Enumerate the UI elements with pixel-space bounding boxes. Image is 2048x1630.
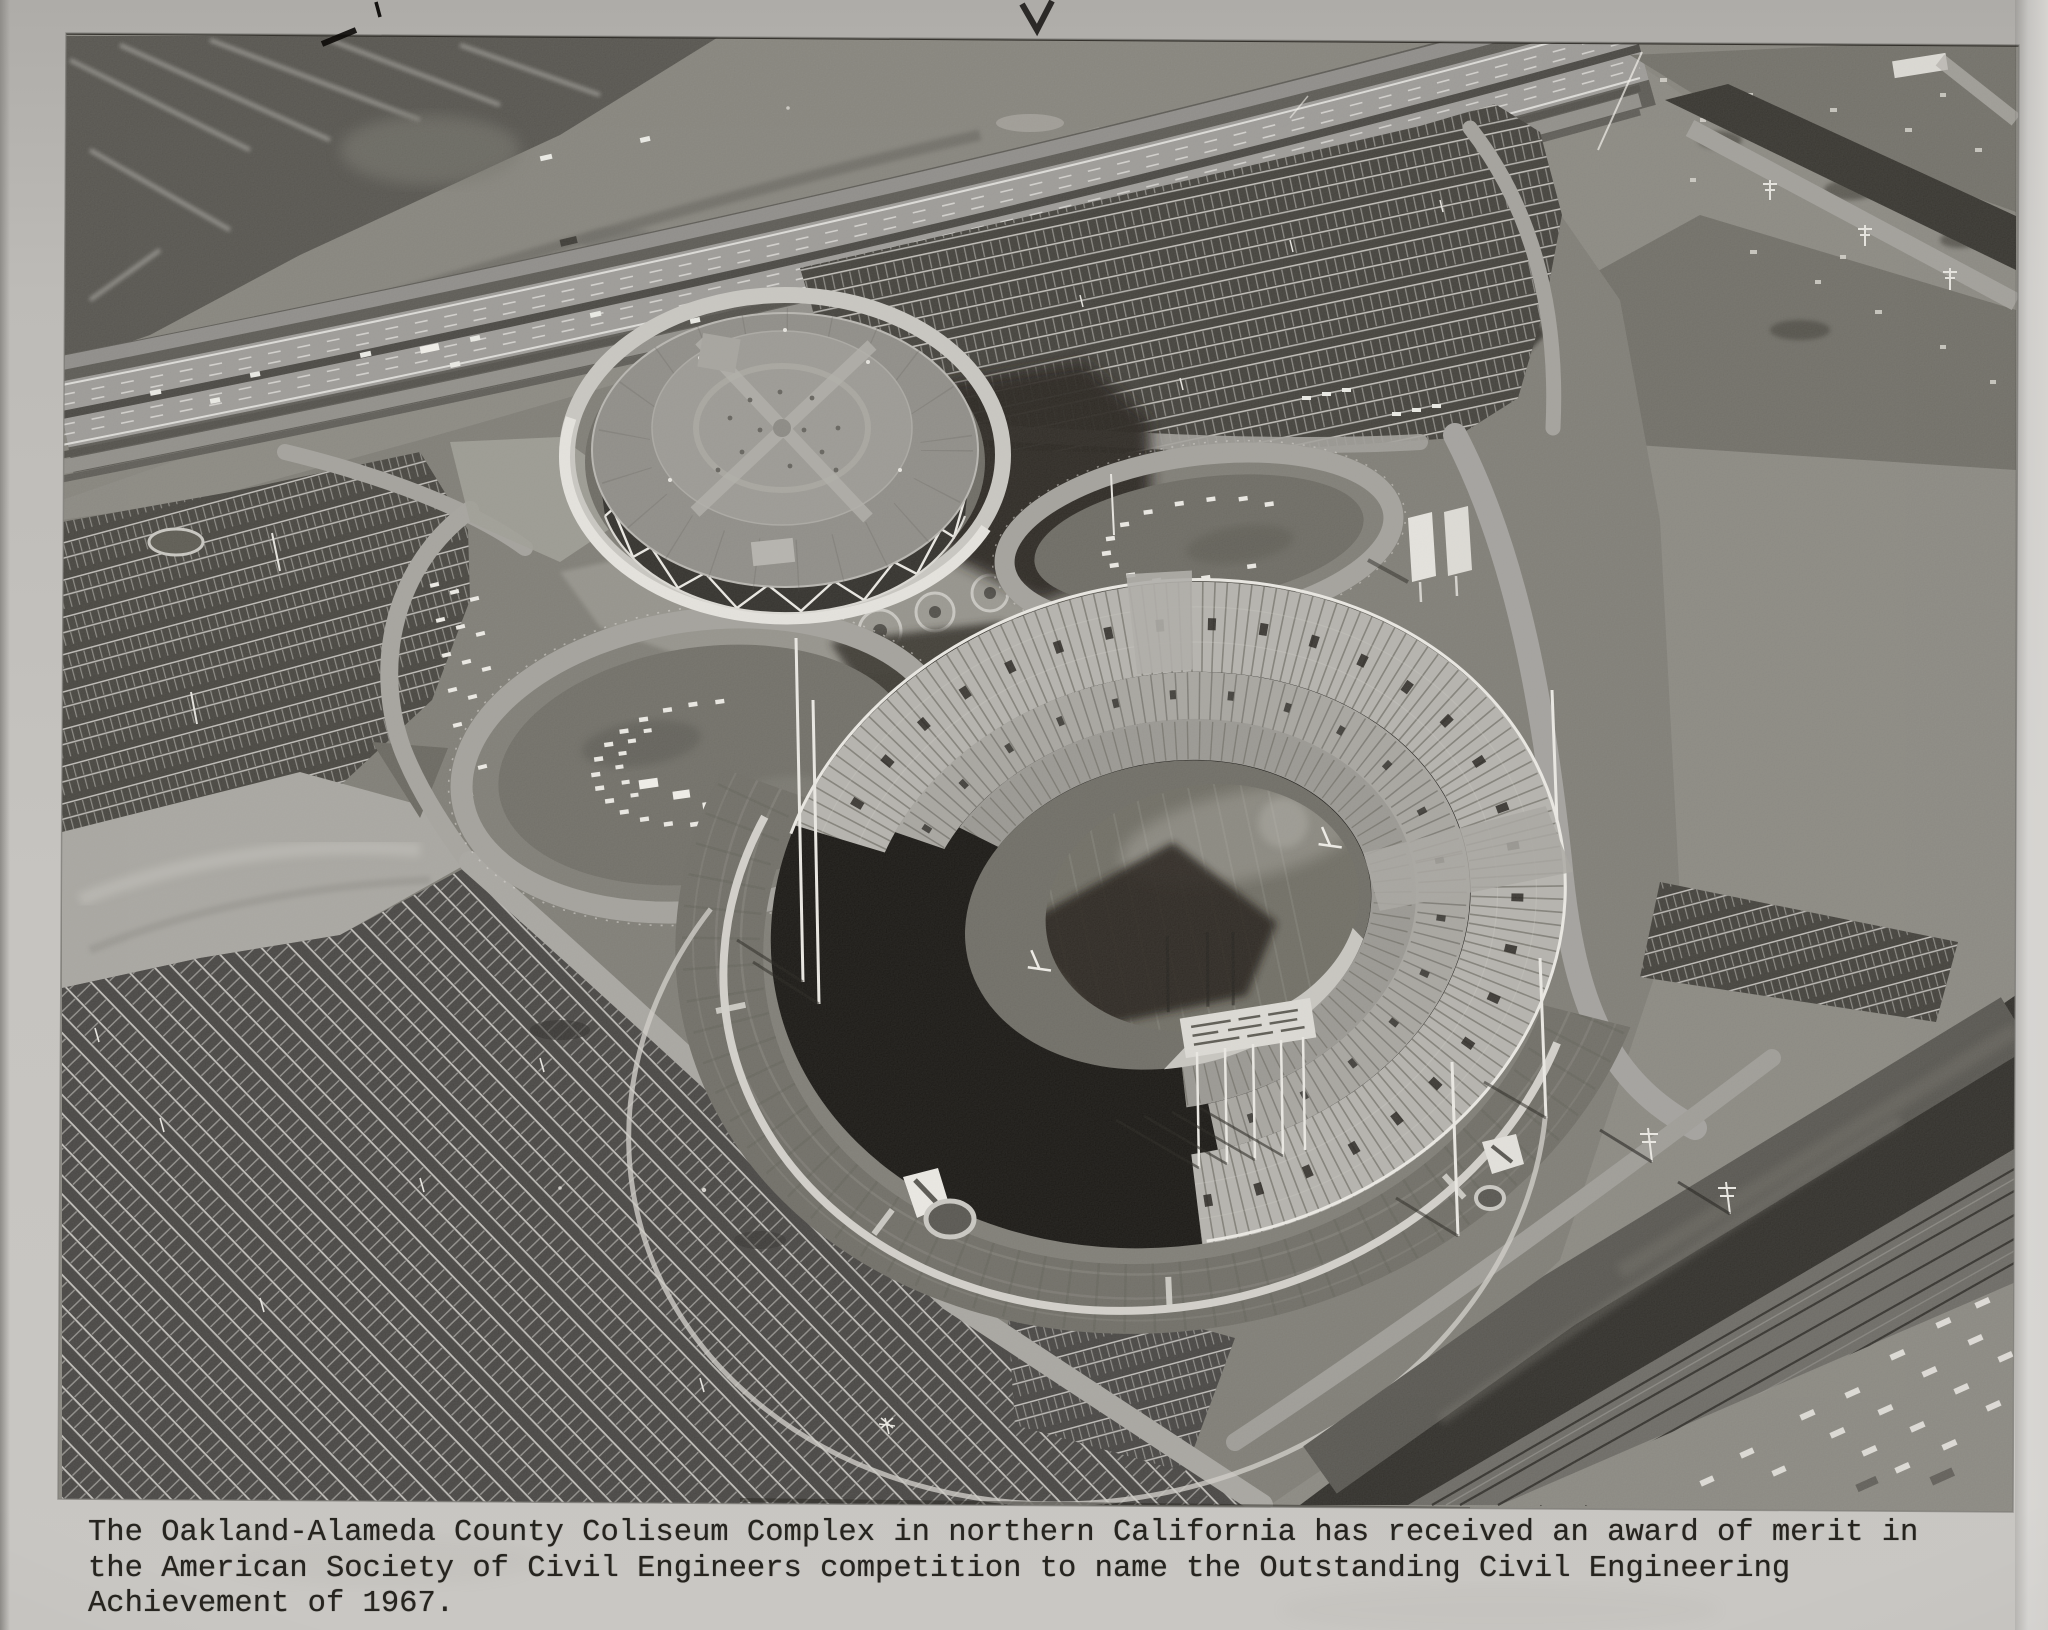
mount-right-border xyxy=(2015,0,2048,1630)
mount-left-edge xyxy=(0,0,10,1630)
checkmark xyxy=(1022,1,1052,30)
caption-line-2: the American Society of Civil Engineers … xyxy=(88,1552,1988,1588)
caption-line-1: The Oakland-Alameda County Coliseum Comp… xyxy=(88,1516,1988,1552)
caption: The Oakland-Alameda County Coliseum Comp… xyxy=(88,1516,1988,1623)
caption-line-3: Achievement of 1967. xyxy=(88,1587,1988,1623)
aerial-photograph xyxy=(0,0,2048,1630)
photo-emulsion xyxy=(40,0,2030,1588)
film-grain xyxy=(40,20,2030,1520)
photo-mount-page: The Oakland-Alameda County Coliseum Comp… xyxy=(0,0,2048,1630)
